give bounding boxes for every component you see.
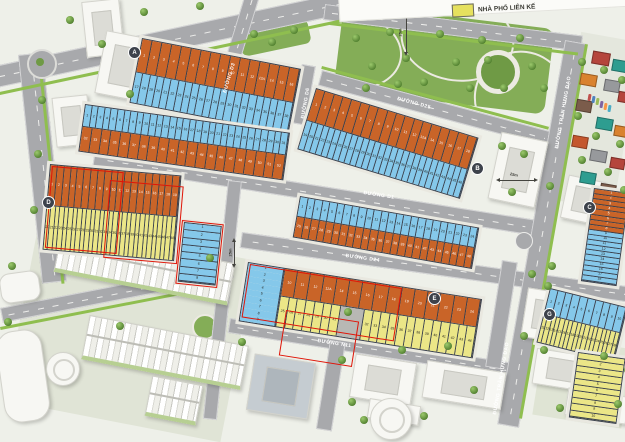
block-badge-b: B xyxy=(471,162,484,175)
tree-icon xyxy=(470,386,478,394)
dimension-arrow xyxy=(234,240,235,266)
tree-icon xyxy=(592,132,600,140)
tree-icon xyxy=(604,168,612,176)
building-round-plaza xyxy=(370,398,412,440)
block-badge-a: A xyxy=(128,46,141,59)
tree-icon xyxy=(196,2,204,10)
building-roof xyxy=(61,105,83,138)
dimension-arrow xyxy=(498,180,536,181)
building-roof xyxy=(364,364,401,396)
plot-column: 12345678910 xyxy=(570,353,624,423)
plaza-ring xyxy=(476,50,520,94)
plot-31[interactable]: 31 xyxy=(279,133,289,155)
tree-icon xyxy=(352,34,360,42)
tree-icon xyxy=(578,156,586,164)
tree-icon xyxy=(520,332,528,340)
tree-icon xyxy=(140,8,148,16)
building-roof xyxy=(262,366,301,406)
tree-icon xyxy=(394,80,402,88)
plot-24[interactable]: 24 xyxy=(467,227,478,247)
tree-icon xyxy=(498,142,506,150)
mini-roundabout xyxy=(515,232,533,250)
red-outline xyxy=(175,220,223,288)
tree-icon xyxy=(290,26,298,34)
tree-icon xyxy=(206,254,214,262)
roundabout xyxy=(27,49,57,79)
block-badge-d: D xyxy=(42,196,55,209)
plot-24[interactable]: 24 xyxy=(464,298,481,327)
tree-icon xyxy=(540,84,548,92)
tree-icon xyxy=(600,66,608,74)
block-badge-g: G xyxy=(543,308,556,321)
tree-icon xyxy=(126,90,134,98)
legend-swatch-townhouse xyxy=(452,3,475,17)
tree-icon xyxy=(528,62,536,70)
tree-icon xyxy=(98,40,106,48)
tree-icon xyxy=(600,352,608,360)
tree-icon xyxy=(556,404,564,412)
building-round-tower xyxy=(46,352,80,386)
roundabout-center xyxy=(36,58,44,66)
tree-icon xyxy=(466,84,474,92)
tree-icon xyxy=(484,56,492,64)
tree-icon xyxy=(516,34,524,42)
tree-icon xyxy=(338,356,346,364)
tree-icon xyxy=(8,262,16,270)
tree-icon xyxy=(520,150,528,158)
red-outline xyxy=(103,180,184,264)
tree-icon xyxy=(30,206,38,214)
block-badge-e: E xyxy=(428,292,441,305)
building-roof xyxy=(441,370,488,400)
tree-icon xyxy=(546,182,554,190)
tree-icon xyxy=(548,262,556,270)
tree-icon xyxy=(344,308,352,316)
tree-icon xyxy=(362,84,370,92)
dimension-label: 25m xyxy=(398,28,403,36)
tree-icon xyxy=(508,188,516,196)
existing-house xyxy=(571,135,589,150)
tree-icon xyxy=(348,398,356,406)
plaza-inner-ring xyxy=(379,407,405,433)
tree-icon xyxy=(452,58,460,66)
tree-icon xyxy=(500,84,508,92)
tree-icon xyxy=(540,346,548,354)
tree-icon xyxy=(360,416,368,424)
plot-52[interactable]: 52 xyxy=(273,155,286,180)
building-glass-slab xyxy=(246,354,316,420)
tree-icon xyxy=(444,342,452,350)
tree-icon xyxy=(386,28,394,36)
building-roof xyxy=(501,147,535,194)
block-badge-c: C xyxy=(583,201,596,214)
tree-icon xyxy=(238,338,246,346)
tree-icon xyxy=(34,150,42,158)
tree-icon xyxy=(250,30,258,38)
tree-icon xyxy=(268,38,276,46)
tree-icon xyxy=(528,270,536,278)
tree-icon xyxy=(368,62,376,70)
tower-ring xyxy=(53,359,75,381)
tree-icon xyxy=(4,318,12,326)
existing-house xyxy=(609,157,625,170)
tree-icon xyxy=(420,78,428,86)
tree-icon xyxy=(66,16,74,24)
dimension-arrow xyxy=(406,14,407,54)
block-corner: 12345678910 xyxy=(569,352,625,424)
tree-icon xyxy=(544,282,552,290)
tree-icon xyxy=(618,76,625,84)
tree-icon xyxy=(616,140,624,148)
tree-icon xyxy=(578,58,586,66)
existing-house xyxy=(579,171,597,186)
tree-icon xyxy=(420,412,428,420)
tree-icon xyxy=(398,346,406,354)
tree-icon xyxy=(436,30,444,38)
tree-icon xyxy=(38,96,46,104)
tree-icon xyxy=(478,36,486,44)
tree-icon xyxy=(116,322,124,330)
tree-icon xyxy=(574,112,582,120)
tree-icon xyxy=(620,186,625,194)
dimension-label: 25m xyxy=(228,248,233,256)
tree-icon xyxy=(614,400,622,408)
